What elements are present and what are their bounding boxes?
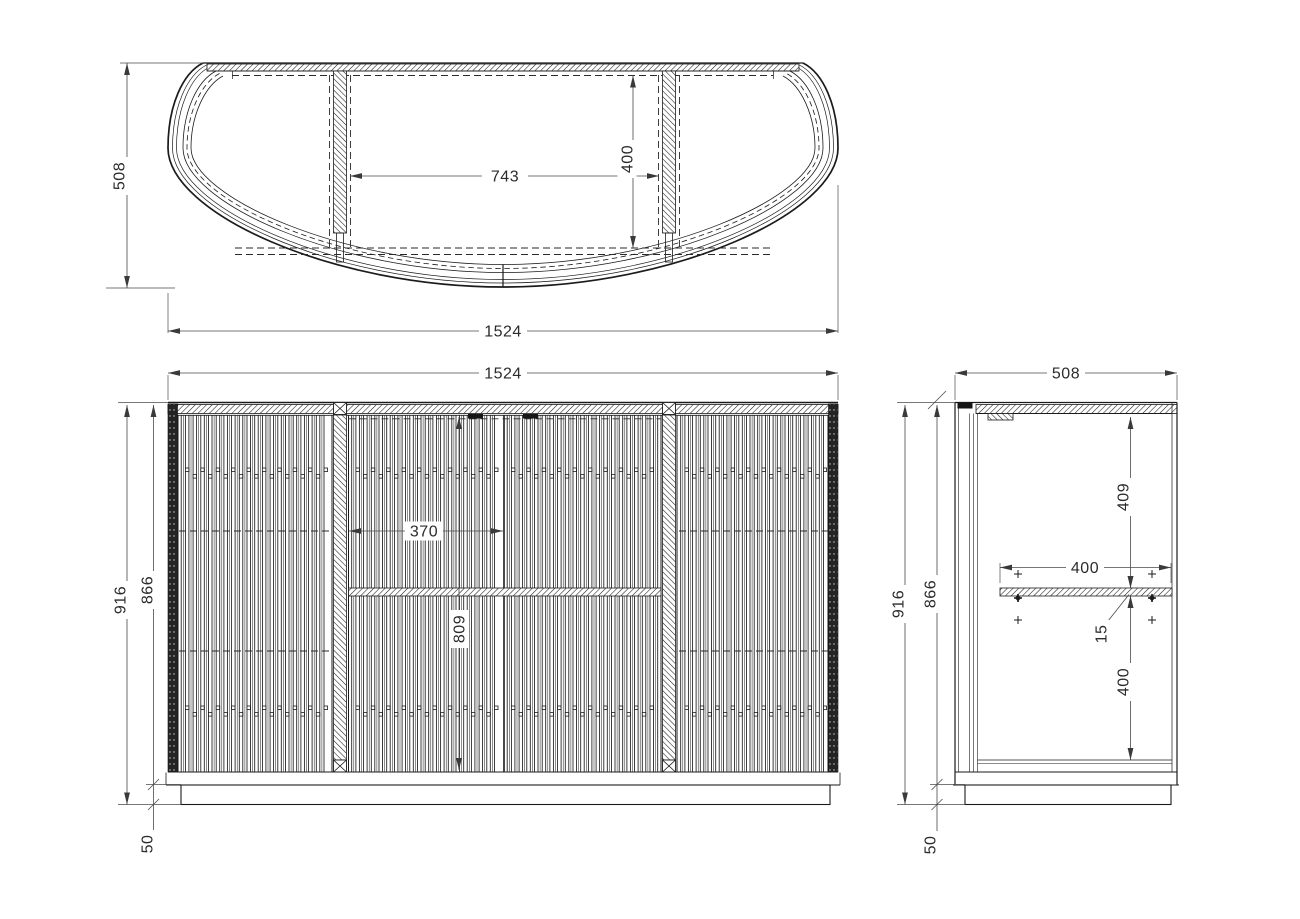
svg-text:50: 50 [923, 836, 940, 855]
front-partition-left [334, 415, 347, 760]
front-right-end-panel [829, 404, 839, 772]
svg-text:866: 866 [923, 580, 940, 608]
svg-text:400: 400 [1116, 668, 1133, 696]
dim-label-plan-depth: 508 [110, 157, 129, 195]
svg-text:508: 508 [112, 162, 129, 190]
side-back-rail-section [988, 414, 1013, 421]
side-top-panel [976, 405, 1177, 414]
dim-label-interior-height: 809 [450, 610, 469, 648]
dim-label-front-body-height: 866 [138, 571, 157, 609]
front-view: 1524 916 866 50 370 [111, 364, 841, 859]
dim-label-shelf-from-top: 409 [1114, 478, 1133, 516]
dim-label-shelf-to-bottom: 400 [1114, 663, 1133, 701]
svg-text:743: 743 [491, 169, 519, 186]
svg-text:1524: 1524 [484, 366, 522, 383]
front-left-end-panel [168, 404, 178, 772]
svg-text:916: 916 [113, 586, 130, 614]
shelf-pin-holes [1014, 570, 1156, 624]
svg-text:50: 50 [140, 835, 157, 854]
plan-partition-left [334, 71, 347, 233]
dim-label-side-body-height: 866 [921, 575, 940, 613]
dim-label-front-height: 916 [111, 581, 130, 619]
front-pull-left [468, 414, 483, 419]
svg-text:400: 400 [1071, 560, 1099, 577]
dim-label-shelf-depth: 400 [1066, 558, 1104, 577]
dim-label-front-plinth: 50 [138, 830, 157, 858]
cabinet-drawing: 743 400 508 1524 [0, 0, 1300, 919]
svg-text:409: 409 [1116, 483, 1133, 511]
dim-label-side-plinth: 50 [921, 831, 940, 859]
side-shelf [1000, 588, 1172, 596]
svg-text:866: 866 [140, 576, 157, 604]
dim-label-side-height: 916 [889, 585, 908, 623]
dim-label-inner-depth: 400 [618, 140, 637, 178]
front-middle-shelf [349, 588, 662, 596]
dim-label-door-width: 370 [405, 522, 443, 541]
front-plinth [181, 785, 830, 805]
plan-partition-right [663, 71, 676, 233]
front-pull-right [523, 414, 538, 419]
plan-back-panel-section [207, 64, 799, 71]
dim-label-plan-width: 1524 [479, 322, 527, 341]
side-back-rail-top [958, 403, 973, 409]
svg-text:1524: 1524 [484, 324, 522, 341]
front-top-panel [168, 405, 838, 414]
top-view: 743 400 508 1524 [106, 63, 838, 341]
svg-text:370: 370 [410, 524, 438, 541]
front-partition-right [663, 415, 676, 760]
svg-text:15: 15 [1094, 625, 1111, 644]
leader-shelf-thickness [1108, 595, 1129, 622]
svg-text:400: 400 [620, 145, 637, 173]
dim-label-side-depth: 508 [1047, 364, 1085, 383]
svg-text:916: 916 [891, 590, 908, 618]
dim-label-shelf-thickness: 15 [1092, 620, 1111, 648]
dim-label-inner-width: 743 [482, 167, 528, 186]
technical-drawing-sheet: 743 400 508 1524 [0, 0, 1300, 919]
side-view: 508 916 866 50 409 [889, 364, 1180, 860]
side-plinth [965, 785, 1171, 805]
svg-text:809: 809 [452, 615, 469, 643]
dim-label-front-width: 1524 [479, 364, 527, 383]
svg-text:508: 508 [1052, 366, 1080, 383]
